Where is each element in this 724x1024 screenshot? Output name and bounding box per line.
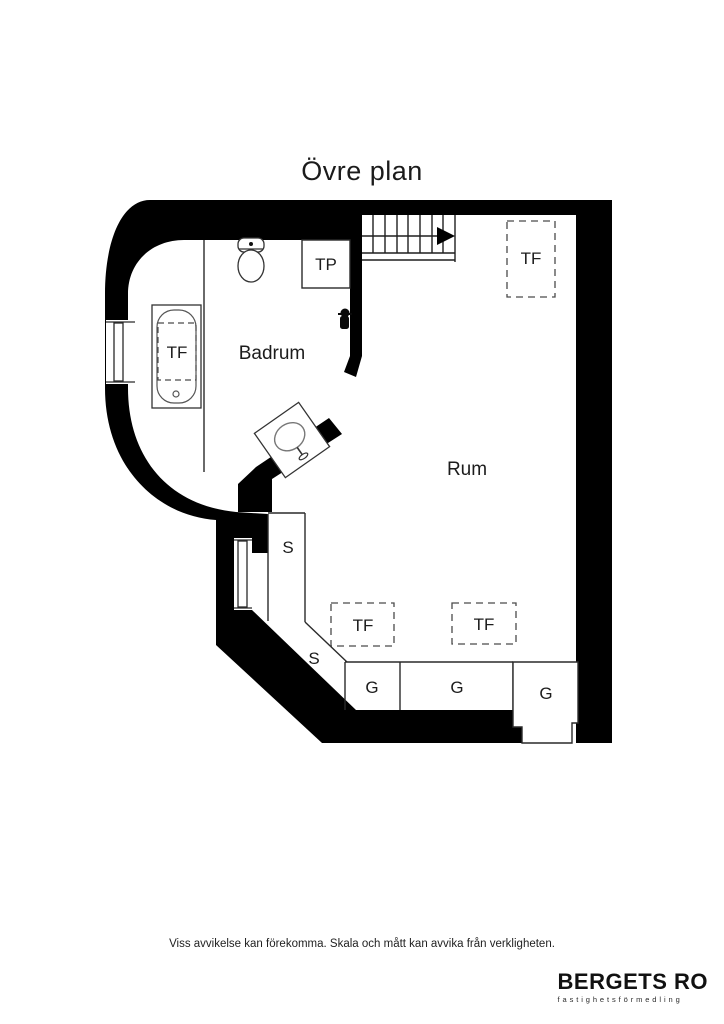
window-icon-lower — [234, 538, 252, 610]
label-g-left: G — [365, 678, 378, 697]
label-tf-bathtub: TF — [167, 343, 188, 362]
label-tf-bottom-left: TF — [353, 616, 374, 635]
label-bathroom: Badrum — [239, 343, 306, 364]
toilet-icon — [238, 238, 264, 282]
label-main-room: Rum — [447, 459, 487, 480]
label-s-upper: S — [282, 538, 293, 557]
wall-bottom-diagonal — [216, 610, 356, 743]
floor-plan: Badrum Rum TP TF TF TF TF S S G G G — [0, 0, 724, 1024]
stairs-direction-arrow-icon — [437, 227, 455, 245]
label-s-lower: S — [308, 649, 319, 668]
brand-name: BERGETS RO — [558, 971, 708, 993]
label-tf-bottom-right: TF — [474, 615, 495, 634]
stairs — [362, 215, 455, 262]
window-icon-bathroom — [106, 320, 135, 384]
wall-right — [576, 200, 612, 743]
label-g-right: G — [539, 684, 552, 703]
label-tf-top-right: TF — [521, 249, 542, 268]
label-g-middle: G — [450, 678, 463, 697]
brand-logo: BERGETS RO fastighetsförmedling — [558, 971, 708, 1004]
wall-top — [362, 200, 612, 215]
label-tp: TP — [315, 255, 337, 274]
bathtub-drain — [173, 391, 179, 397]
wall-bottom — [345, 710, 522, 743]
tf-zones — [331, 221, 555, 646]
shower-mixer-icon — [338, 309, 352, 330]
disclaimer-text: Viss avvikelse kan förekomma. Skala och … — [0, 938, 724, 950]
brand-tagline: fastighetsförmedling — [558, 995, 708, 1004]
